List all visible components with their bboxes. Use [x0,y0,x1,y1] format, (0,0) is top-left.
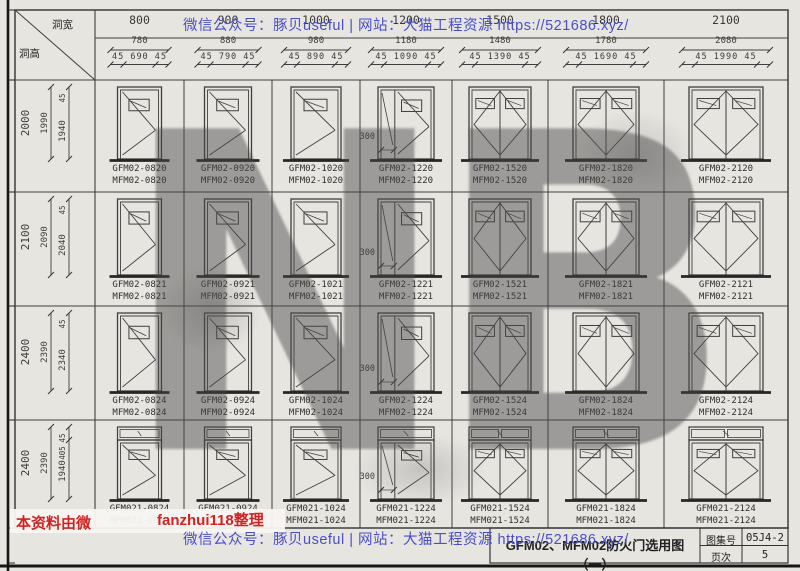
corner-width-label: 洞宽 [52,17,94,32]
atlas-no-value: 05J4-2 [743,532,787,544]
corner-height-label: 洞高 [19,46,61,61]
watermark-bottom-line: 微信公众号：豚贝useful | 网站：大猫工程资源 https://52168… [183,528,629,549]
red-note-left: 本资料由微 [16,512,91,533]
atlas-no-label: 图集号 [701,532,741,547]
page-no-value: 5 [743,549,787,561]
page-no-label: 页次 [701,549,741,564]
scanned-atlas-page: 80078045 690 4590088045 790 45100098045 … [0,0,800,571]
watermark-top-line: 微信公众号：豚贝useful | 网站：大猫工程资源 https://52168… [183,14,629,35]
drawing-grid-svg [0,0,800,571]
red-note-editor: fanzhui118整理 [157,509,264,530]
